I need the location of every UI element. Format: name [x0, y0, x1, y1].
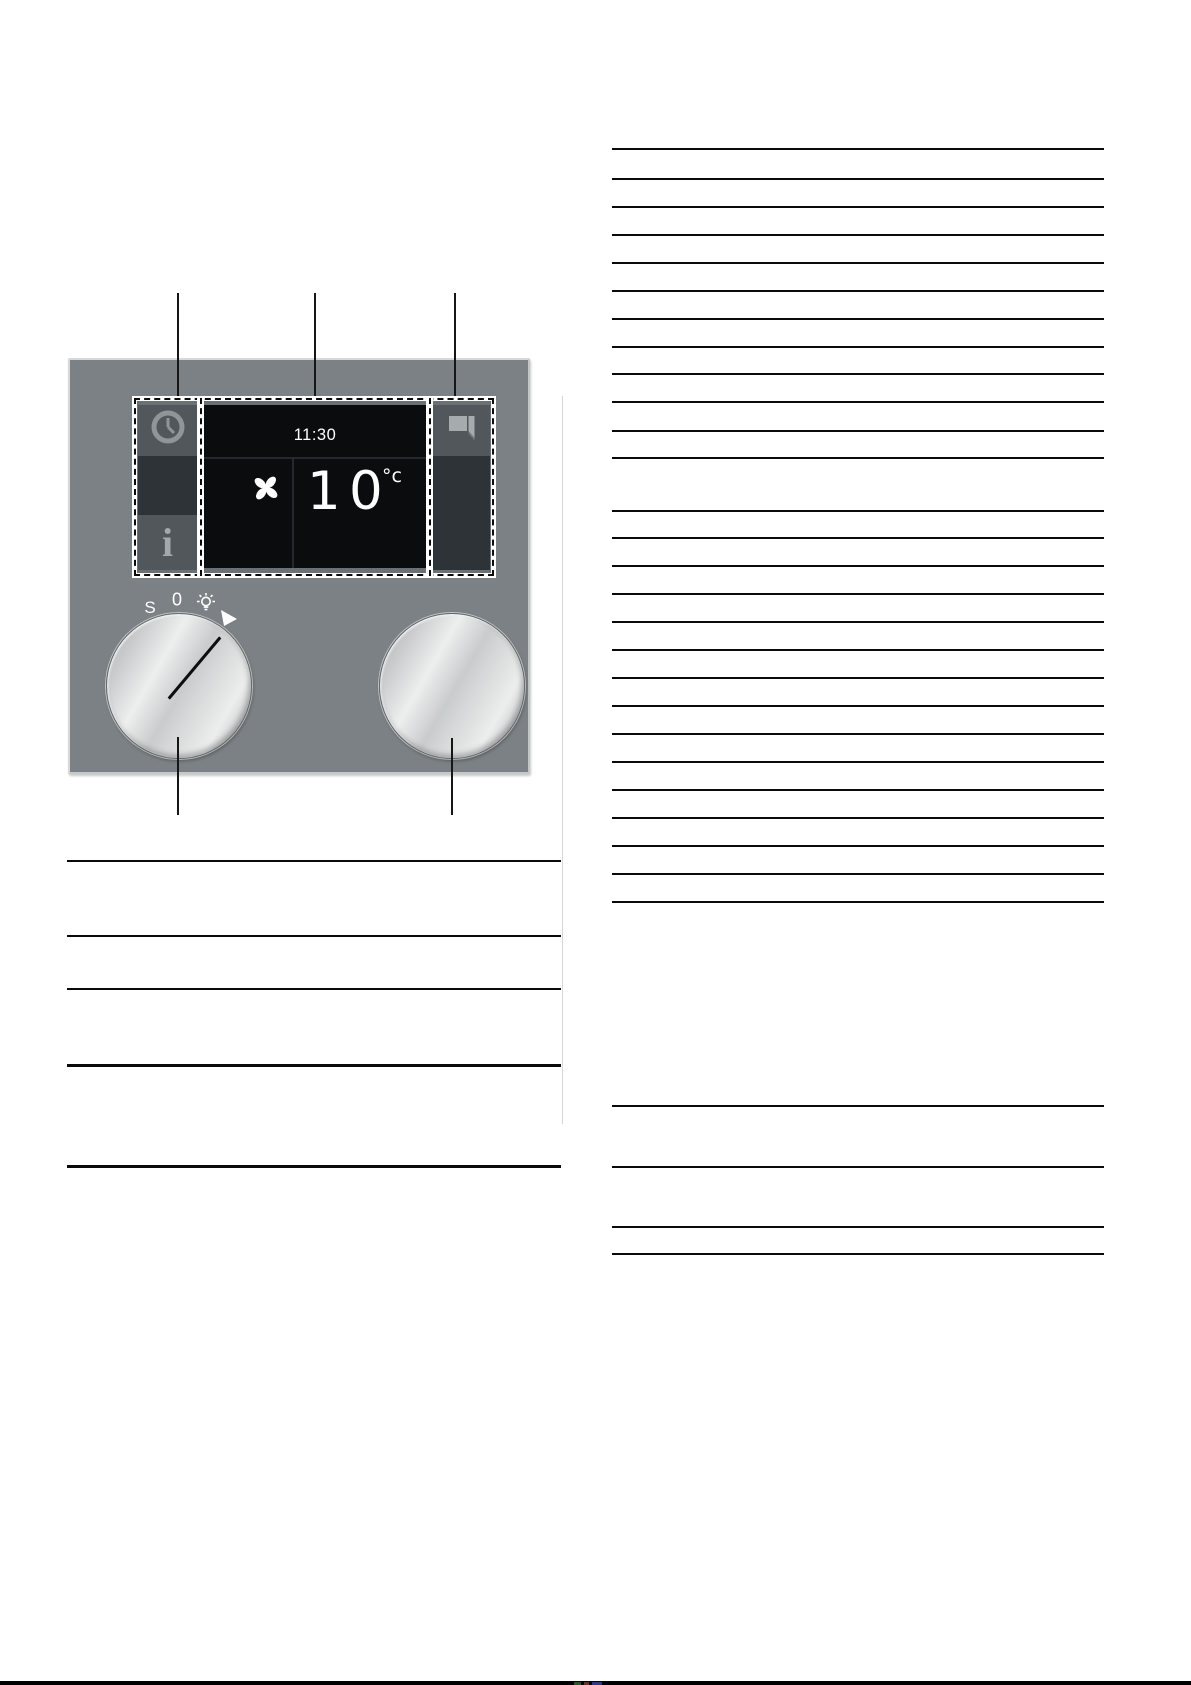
- table-rule-line: [612, 649, 1104, 651]
- table-rule-line: [612, 873, 1104, 875]
- table-rule-line: [612, 845, 1104, 847]
- table-rule-line: [612, 1105, 1104, 1107]
- page-bottom-edge-bar: [0, 1681, 1191, 1685]
- table-rule-line: [612, 789, 1104, 791]
- table-rule-line: [612, 430, 1104, 432]
- table-rule-line: [612, 346, 1104, 348]
- table-rule-line: [612, 457, 1104, 459]
- table-rule-line: [612, 234, 1104, 236]
- table-rule-line: [612, 373, 1104, 375]
- table-rule-line: [612, 1226, 1104, 1228]
- table-rule-line: [612, 593, 1104, 595]
- table-rule-line: [612, 733, 1104, 735]
- table-rule-line: [612, 565, 1104, 567]
- table-rule-line: [612, 318, 1104, 320]
- table-rule-line: [612, 148, 1104, 150]
- table-rule-line: [612, 705, 1104, 707]
- table-rule-line: [612, 290, 1104, 292]
- table-rule-line: [612, 401, 1104, 403]
- table-rule-line: [612, 1166, 1104, 1168]
- table-rule-line: [612, 206, 1104, 208]
- right-column-rules: [0, 0, 1191, 1685]
- table-rule-line: [612, 1253, 1104, 1255]
- table-rule-line: [612, 761, 1104, 763]
- manual-page: i 11:30 1 0 °c: [0, 0, 1191, 1685]
- table-rule-line: [612, 178, 1104, 180]
- table-rule-line: [612, 677, 1104, 679]
- table-rule-line: [612, 510, 1104, 512]
- table-rule-line: [612, 537, 1104, 539]
- table-rule-line: [612, 262, 1104, 264]
- table-rule-line: [612, 901, 1104, 903]
- table-rule-line: [612, 817, 1104, 819]
- table-rule-line: [612, 621, 1104, 623]
